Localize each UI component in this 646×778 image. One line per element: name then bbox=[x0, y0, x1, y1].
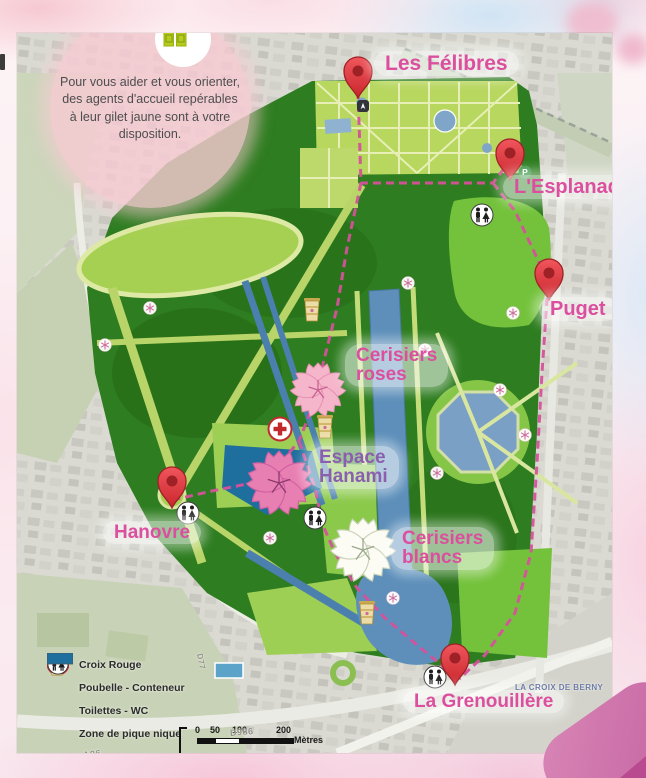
info-line: disposition. bbox=[38, 126, 262, 143]
park-map: P Les Félibres L'Esplanade bbox=[17, 33, 612, 753]
info-text: Pour vous aider et vous orienter, des ag… bbox=[38, 74, 262, 143]
label-les-felibres: Les Félibres bbox=[374, 51, 519, 76]
scale-tick: 0 bbox=[195, 725, 200, 735]
scale-band bbox=[197, 738, 294, 744]
label-cerisiers-roses: Cerisiers roses bbox=[345, 344, 448, 387]
label-line: Cerisiers bbox=[402, 529, 483, 548]
label-line: Cerisiers bbox=[356, 346, 437, 365]
safety-vest-icon bbox=[155, 33, 211, 67]
legend-label: Croix Rouge bbox=[79, 659, 141, 671]
fountain-basin bbox=[434, 110, 456, 132]
legend-row-poubelle: Poubelle - Conteneur bbox=[47, 676, 185, 699]
scale-tick: 200 bbox=[276, 725, 291, 735]
swimming-pool bbox=[215, 663, 243, 678]
label-cerisiers-blancs: Cerisiers blancs bbox=[391, 527, 494, 570]
label-la-grenouillere: La Grenouillère bbox=[403, 690, 564, 713]
toilets-icon bbox=[471, 204, 493, 226]
label-line: Espace bbox=[319, 448, 388, 467]
map-legend: Croix Rouge Poubelle - Conteneur Toilett… bbox=[47, 653, 185, 745]
nav-icon bbox=[357, 100, 369, 112]
legend-row-toilettes: Toilettes - WC bbox=[47, 699, 185, 722]
label-line: Hanami bbox=[319, 467, 388, 486]
legend-label: Zone de pique nique bbox=[79, 728, 181, 740]
label-hanovre: Hanovre bbox=[103, 521, 201, 544]
label-puget: Puget bbox=[539, 297, 612, 321]
place-label-la-croix-de-berny: LA CROIX DE BERNY bbox=[515, 683, 603, 692]
edge-artifact bbox=[0, 54, 5, 70]
red-cross-icon bbox=[269, 418, 292, 441]
info-line: Pour vous aider et vous orienter, bbox=[38, 74, 262, 91]
scale-tick: 50 bbox=[210, 725, 220, 735]
bracket-mark bbox=[179, 727, 187, 753]
label-espace-hanami: Espace Hanami bbox=[308, 446, 399, 489]
toilets-icon bbox=[304, 507, 326, 529]
trash-bin-icon bbox=[317, 415, 333, 438]
scale-unit: Mètres bbox=[294, 735, 323, 745]
trash-bin-icon bbox=[304, 298, 320, 321]
legend-row-picnic: Zone de pique nique bbox=[47, 722, 185, 745]
decor-petal bbox=[616, 34, 646, 64]
label-l-esplanade: L'Esplanade bbox=[503, 175, 612, 199]
road-label-d986: D986 bbox=[230, 726, 254, 738]
trash-bin-icon bbox=[359, 601, 375, 624]
info-line: à leur gilet jaune sont à votre bbox=[38, 109, 262, 126]
label-line: roses bbox=[356, 365, 437, 384]
label-line: blancs bbox=[402, 548, 483, 567]
esplanade-lawn bbox=[449, 197, 551, 327]
toilets-icon bbox=[424, 666, 446, 688]
info-line: des agents d'accueil repérables bbox=[38, 91, 262, 108]
road-label-a86: A86 bbox=[82, 748, 101, 753]
poster-frame: P Les Félibres L'Esplanade bbox=[0, 0, 646, 778]
legend-label: Poubelle - Conteneur bbox=[79, 682, 185, 694]
legend-label: Toilettes - WC bbox=[79, 705, 148, 717]
